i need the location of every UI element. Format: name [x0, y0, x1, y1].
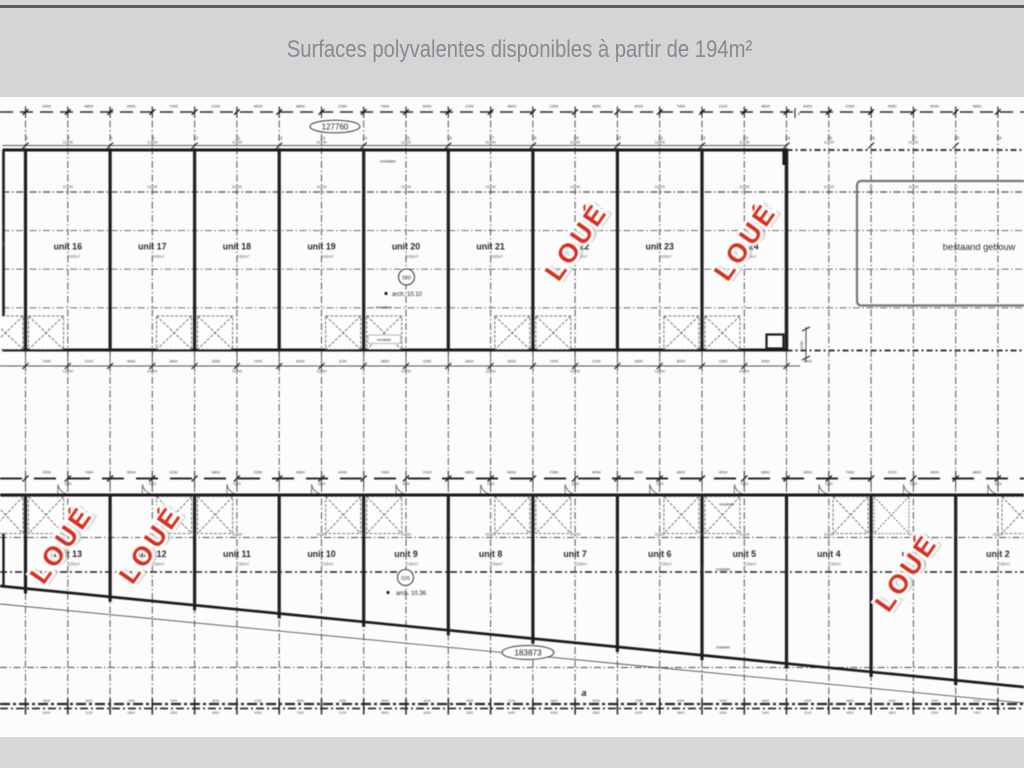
svg-text:11000: 11000 [739, 185, 749, 189]
svg-text:4600: 4600 [381, 699, 389, 703]
svg-text:4800: 4800 [381, 360, 389, 364]
svg-text:unit 18: unit 18 [223, 242, 251, 252]
svg-text:238m²: 238m² [659, 562, 672, 567]
svg-text:11000: 11000 [570, 533, 580, 537]
svg-text:11000: 11000 [316, 533, 326, 537]
svg-text:183873: 183873 [514, 649, 542, 658]
svg-text:installatie: installatie [716, 646, 730, 650]
svg-text:2100: 2100 [85, 360, 93, 364]
svg-text:1100: 1100 [487, 482, 495, 486]
svg-text:7400: 7400 [550, 360, 558, 364]
svg-text:8.52: 8.52 [701, 565, 705, 572]
svg-text:unit 9: unit 9 [394, 549, 418, 559]
svg-text:11000: 11000 [485, 141, 495, 145]
svg-text:11000: 11000 [232, 370, 242, 374]
svg-text:2350: 2350 [339, 699, 347, 703]
svg-text:60: 60 [447, 533, 451, 537]
svg-text:unit 7: unit 7 [563, 549, 587, 559]
svg-text:60: 60 [616, 533, 620, 537]
svg-text:11000: 11000 [63, 185, 73, 189]
svg-text:4000: 4000 [719, 699, 727, 703]
svg-text:6000: 6000 [296, 360, 304, 364]
svg-text:2350: 2350 [635, 699, 643, 703]
svg-text:6800: 6800 [846, 699, 854, 703]
svg-text:238m²: 238m² [829, 562, 842, 567]
svg-text:2100: 2100 [339, 711, 347, 715]
svg-text:11000: 11000 [63, 141, 73, 145]
svg-text:12: 12 [278, 136, 284, 141]
svg-text:238m²: 238m² [575, 562, 588, 567]
svg-text:unit 10: unit 10 [307, 549, 335, 559]
svg-text:238m²: 238m² [237, 562, 250, 567]
svg-text:238m²: 238m² [406, 562, 419, 567]
svg-text:16: 16 [447, 136, 453, 141]
svg-text:4000: 4000 [424, 699, 432, 703]
svg-text:7400: 7400 [676, 104, 686, 109]
svg-text:4800: 4800 [972, 470, 981, 475]
svg-text:6000: 6000 [127, 470, 136, 475]
svg-text:4050: 4050 [592, 470, 601, 475]
svg-text:11000: 11000 [908, 141, 918, 145]
svg-text:24: 24 [785, 136, 791, 141]
svg-text:11000: 11000 [739, 370, 749, 374]
svg-text:11000: 11000 [316, 141, 326, 145]
svg-text:60: 60 [954, 533, 958, 537]
svg-text:installatie: installatie [720, 503, 735, 507]
svg-text:60: 60 [869, 185, 873, 189]
svg-text:a: a [581, 688, 586, 698]
svg-text:348m²: 348m² [68, 254, 81, 259]
svg-text:11000: 11000 [147, 370, 157, 374]
svg-text:1150: 1150 [254, 699, 261, 703]
svg-text:4600: 4600 [972, 104, 982, 109]
svg-text:2100: 2100 [888, 470, 897, 475]
svg-text:60: 60 [531, 533, 535, 537]
svg-text:4800: 4800 [465, 470, 474, 475]
svg-text:2100: 2100 [719, 104, 729, 109]
svg-text:26: 26 [870, 136, 876, 141]
svg-text:4000: 4000 [804, 699, 812, 703]
svg-text:1100: 1100 [825, 482, 833, 486]
svg-text:6000: 6000 [593, 699, 601, 703]
svg-text:4050: 4050 [888, 104, 898, 109]
svg-text:11000: 11000 [485, 185, 495, 189]
svg-text:11000: 11000 [401, 533, 411, 537]
svg-text:4000: 4000 [42, 104, 52, 109]
svg-text:4600: 4600 [593, 711, 601, 715]
svg-text:4600: 4600 [212, 711, 220, 715]
svg-text:7400: 7400 [846, 470, 855, 475]
svg-text:installatie: installatie [380, 160, 396, 164]
svg-text:4800: 4800 [211, 470, 220, 475]
svg-text:11000: 11000 [401, 185, 411, 189]
svg-text:8: 8 [110, 136, 113, 141]
svg-text:2350: 2350 [338, 104, 348, 109]
svg-text:11000: 11000 [655, 370, 665, 374]
svg-text:1100: 1100 [994, 482, 1002, 486]
svg-text:2100: 2100 [592, 360, 600, 364]
svg-text:2100: 2100 [211, 104, 221, 109]
svg-text:4600: 4600 [127, 360, 135, 364]
svg-text:2350: 2350 [423, 360, 431, 364]
svg-text:2350: 2350 [719, 360, 727, 364]
svg-text:7400: 7400 [380, 104, 390, 109]
svg-text:2350: 2350 [466, 711, 474, 715]
svg-text:4800: 4800 [169, 360, 177, 364]
svg-text:60: 60 [869, 533, 873, 537]
svg-text:4800: 4800 [297, 699, 305, 703]
svg-text:1100: 1100 [740, 482, 748, 486]
svg-text:1100: 1100 [910, 482, 918, 486]
svg-text:6000: 6000 [424, 711, 432, 715]
svg-text:14: 14 [362, 136, 368, 141]
svg-text:2350: 2350 [170, 711, 178, 715]
svg-text:7400: 7400 [297, 711, 305, 715]
svg-text:4000: 4000 [338, 470, 347, 475]
svg-text:4600: 4600 [592, 104, 602, 109]
svg-text:60: 60 [24, 533, 28, 537]
svg-text:11000: 11000 [908, 185, 918, 189]
svg-text:11000: 11000 [739, 141, 749, 145]
svg-text:11000: 11000 [993, 533, 1003, 537]
svg-text:11000: 11000 [316, 185, 326, 189]
svg-text:238m²: 238m² [744, 562, 757, 567]
svg-text:2350: 2350 [550, 470, 559, 475]
svg-text:2100: 2100 [423, 470, 432, 475]
svg-text:2350: 2350 [846, 104, 856, 109]
svg-text:bestaand gebouw: bestaand gebouw [943, 242, 1016, 252]
svg-text:7400: 7400 [931, 699, 939, 703]
svg-text:080: 080 [402, 276, 411, 282]
svg-text:7400: 7400 [762, 711, 770, 715]
svg-text:arch. 10.10: arch. 10.10 [392, 292, 423, 298]
svg-text:4800: 4800 [381, 711, 389, 715]
svg-text:11000: 11000 [401, 141, 411, 145]
svg-text:unit 20: unit 20 [392, 242, 420, 252]
svg-text:29: 29 [996, 136, 1002, 141]
svg-text:6000: 6000 [677, 360, 685, 364]
svg-text:11000: 11000 [147, 185, 157, 189]
svg-text:238m²: 238m² [998, 562, 1011, 567]
svg-text:18: 18 [531, 136, 537, 141]
svg-text:6800: 6800 [761, 470, 770, 475]
svg-text:2100: 2100 [804, 711, 812, 715]
svg-text:2350: 2350 [254, 470, 263, 475]
svg-text:4800: 4800 [128, 711, 136, 715]
svg-text:1100: 1100 [402, 482, 410, 486]
svg-text:10: 10 [193, 136, 199, 141]
svg-text:unit 5: unit 5 [733, 549, 757, 559]
svg-text:unit 21: unit 21 [476, 242, 504, 252]
svg-text:1100: 1100 [64, 482, 72, 486]
svg-text:1150: 1150 [339, 360, 347, 364]
svg-text:11000: 11000 [570, 185, 580, 189]
svg-text:ventilatie: ventilatie [377, 338, 391, 342]
svg-text:28: 28 [954, 136, 960, 141]
svg-text:6000: 6000 [507, 470, 516, 475]
svg-text:026: 026 [401, 576, 410, 582]
svg-text:6000: 6000 [212, 699, 220, 703]
svg-text:8.52: 8.52 [870, 565, 874, 572]
svg-text:11000: 11000 [655, 185, 665, 189]
svg-text:7400: 7400 [381, 470, 390, 475]
svg-text:4050: 4050 [761, 360, 769, 364]
svg-text:4000: 4000 [550, 711, 558, 715]
svg-text:348m²: 348m² [237, 254, 250, 259]
svg-text:4600: 4600 [930, 470, 939, 475]
svg-text:6000: 6000 [803, 104, 813, 109]
svg-text:4600: 4600 [465, 360, 473, 364]
svg-text:1150: 1150 [169, 470, 178, 475]
svg-text:11000: 11000 [824, 185, 834, 189]
svg-text:4800: 4800 [507, 104, 517, 109]
svg-text:1100: 1100 [318, 482, 326, 486]
svg-text:60: 60 [108, 533, 112, 537]
svg-text:60: 60 [362, 533, 366, 537]
svg-text:11000: 11000 [232, 185, 242, 189]
svg-text:unit 16: unit 16 [54, 242, 82, 252]
svg-text:4050: 4050 [677, 699, 685, 703]
svg-text:4000: 4000 [719, 470, 728, 475]
svg-text:unit 23: unit 23 [646, 242, 674, 252]
svg-text:2350: 2350 [931, 711, 939, 715]
svg-text:4000: 4000 [803, 360, 811, 364]
svg-text:2350: 2350 [212, 360, 220, 364]
svg-text:4800: 4800 [634, 360, 642, 364]
svg-text:4000: 4000 [254, 711, 262, 715]
svg-text:4000: 4000 [634, 104, 644, 109]
svg-text:6: 6 [2, 242, 6, 248]
svg-text:unit 2: unit 2 [986, 549, 1010, 559]
svg-text:4600: 4600 [254, 104, 264, 109]
svg-text:11000: 11000 [570, 141, 580, 145]
svg-text:60: 60 [700, 533, 704, 537]
svg-text:7400: 7400 [170, 699, 178, 703]
svg-text:6800: 6800 [84, 104, 94, 109]
svg-text:unit 4: unit 4 [817, 549, 841, 559]
svg-text:4000: 4000 [930, 104, 940, 109]
svg-text:installatie: installatie [376, 306, 392, 310]
svg-text:7400: 7400 [973, 711, 981, 715]
svg-text:unit 19: unit 19 [307, 242, 335, 252]
svg-text:6250: 6250 [800, 341, 804, 349]
svg-text:60: 60 [193, 533, 197, 537]
svg-text:4800: 4800 [550, 699, 558, 703]
svg-text:unit 11: unit 11 [223, 549, 251, 559]
svg-text:7400: 7400 [254, 360, 262, 364]
svg-text:2100: 2100 [508, 699, 516, 703]
svg-text:2100: 2100 [973, 699, 981, 703]
svg-text:7400: 7400 [466, 699, 474, 703]
svg-text:11000: 11000 [655, 533, 665, 537]
svg-text:unit 17: unit 17 [138, 242, 166, 252]
svg-text:8.52: 8.52 [531, 565, 535, 572]
svg-text:4000: 4000 [889, 699, 897, 703]
svg-text:installatie: installatie [716, 568, 730, 572]
svg-text:4000: 4000 [635, 711, 643, 715]
svg-text:60: 60 [277, 533, 281, 537]
svg-text:11000: 11000 [232, 141, 242, 145]
svg-text:11000: 11000 [485, 370, 495, 374]
svg-text:6000: 6000 [43, 711, 51, 715]
svg-text:11000: 11000 [401, 370, 411, 374]
svg-text:unit 6: unit 6 [648, 549, 672, 559]
svg-text:1100: 1100 [656, 482, 664, 486]
svg-text:4050: 4050 [508, 711, 516, 715]
svg-text:8.52: 8.52 [701, 335, 705, 342]
svg-text:4600: 4600 [846, 711, 854, 715]
svg-text:11000: 11000 [147, 141, 157, 145]
svg-text:4800: 4800 [85, 699, 93, 703]
svg-text:348m²: 348m² [659, 254, 672, 259]
svg-text:11000: 11000 [655, 141, 665, 145]
svg-text:4000: 4000 [634, 470, 643, 475]
svg-text:11000: 11000 [485, 533, 495, 537]
svg-text:22: 22 [700, 136, 706, 141]
svg-text:238m²: 238m² [490, 562, 503, 567]
svg-text:11000: 11000 [63, 370, 73, 374]
svg-text:4000: 4000 [127, 104, 137, 109]
svg-text:4600: 4600 [296, 470, 305, 475]
svg-text:6: 6 [25, 136, 28, 141]
svg-text:arch. 10.36: arch. 10.36 [396, 591, 427, 597]
svg-text:7400: 7400 [85, 470, 94, 475]
svg-text:20: 20 [616, 136, 622, 141]
svg-text:127760: 127760 [322, 122, 349, 131]
svg-text:6800: 6800 [677, 711, 685, 715]
svg-text:11000: 11000 [232, 533, 242, 537]
svg-text:4600: 4600 [43, 699, 51, 703]
svg-text:11000: 11000 [824, 533, 834, 537]
svg-text:4600: 4600 [762, 699, 770, 703]
svg-text:1100: 1100 [233, 482, 241, 486]
svg-text:unit 8: unit 8 [479, 549, 503, 559]
svg-text:2350: 2350 [550, 104, 560, 109]
svg-text:348m²: 348m² [490, 254, 503, 259]
svg-text:11000: 11000 [316, 370, 326, 374]
svg-text:2350: 2350 [42, 470, 51, 475]
svg-text:11000: 11000 [739, 533, 749, 537]
svg-text:11000: 11000 [570, 370, 580, 374]
svg-text:348m²: 348m² [406, 254, 419, 259]
svg-text:4600: 4600 [676, 470, 685, 475]
svg-text:8.52: 8.52 [531, 335, 535, 342]
svg-text:4800: 4800 [761, 104, 771, 109]
svg-text:4800: 4800 [889, 711, 897, 715]
svg-text:7400: 7400 [42, 360, 50, 364]
svg-text:4000: 4000 [507, 360, 515, 364]
svg-text:1100: 1100 [148, 482, 156, 486]
svg-text:7400: 7400 [169, 104, 179, 109]
svg-text:11000: 11000 [824, 141, 834, 145]
svg-text:1150: 1150 [465, 104, 474, 109]
svg-text:348m²: 348m² [321, 254, 334, 259]
svg-text:348m²: 348m² [152, 254, 165, 259]
svg-text:4000: 4000 [719, 711, 727, 715]
svg-text:4800: 4800 [296, 104, 306, 109]
svg-text:1150: 1150 [85, 711, 92, 715]
svg-text:1100: 1100 [571, 482, 579, 486]
svg-text:238m²: 238m² [321, 562, 334, 567]
svg-text:60: 60 [785, 533, 789, 537]
svg-text:60: 60 [954, 185, 958, 189]
svg-text:4000: 4000 [803, 470, 812, 475]
svg-text:6000: 6000 [423, 104, 433, 109]
svg-text:2350: 2350 [128, 699, 136, 703]
